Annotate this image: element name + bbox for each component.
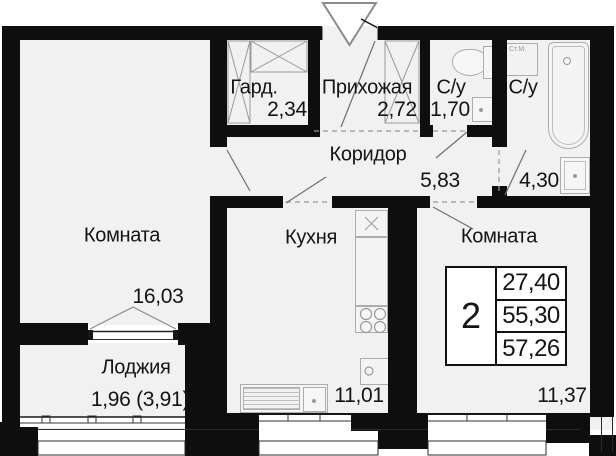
- bathtub-inner: [552, 46, 585, 145]
- washing-machine: Ст.М.: [505, 43, 538, 76]
- room2-area: 11,37: [537, 384, 587, 408]
- wall-hall-bath1: [420, 26, 430, 137]
- column-kitchen-room2: [388, 196, 417, 413]
- bath2-sink: [560, 157, 590, 194]
- hallway-label: Прихожая: [322, 77, 412, 100]
- pier-loggia-kitchen: [185, 413, 259, 456]
- wall-corridor-b: [332, 196, 430, 208]
- corridor-label: Коридор: [330, 144, 407, 167]
- bath2-area: 4,30: [519, 169, 559, 193]
- floor-plan: Ст.М.: [0, 0, 616, 456]
- gard-label: Гард.: [230, 77, 277, 100]
- wall-room1-loggia-b: [178, 323, 227, 345]
- dish-rack: [243, 387, 300, 410]
- kitchen-area: 11,01: [334, 384, 384, 408]
- hallway-area: 2,72: [377, 98, 417, 122]
- undercounter-appliance: [360, 358, 390, 385]
- bath2-sink-inner: [564, 161, 586, 190]
- wall-gard-hall: [308, 26, 320, 137]
- stove: [355, 306, 388, 333]
- room2-label: Комната: [461, 226, 537, 249]
- living-area-value: 27,40: [497, 268, 565, 301]
- gard-area: 2,34: [267, 98, 307, 122]
- kitchen-counter-right: [355, 237, 388, 306]
- wall-under-bath1-b: [467, 125, 492, 137]
- kitchen-sink: [303, 387, 326, 412]
- wall-under-bath1-a: [420, 125, 433, 137]
- loggia-label: Лоджия: [101, 357, 170, 380]
- loggia-area: 1,96 (3,91): [91, 388, 189, 412]
- fridge-unit: [355, 210, 388, 237]
- wall-under-gard: [210, 125, 313, 137]
- apartment-info-box: 2 27,40 55,30 57,26: [445, 266, 567, 366]
- bath2-label: С/у: [508, 77, 537, 100]
- corridor-area: 5,83: [420, 169, 460, 193]
- rooms-count: 2: [447, 268, 497, 364]
- wall-room1-loggia-a: [2, 323, 88, 345]
- area-without-loggia-value: 55,30: [497, 301, 565, 334]
- room1-label: Комната: [84, 225, 160, 248]
- area-values: 27,40 55,30 57,26: [497, 268, 565, 364]
- wall-bath-divider: [492, 26, 507, 147]
- room1-area: 16,03: [132, 285, 183, 309]
- kitchen-label: Кухня: [285, 227, 337, 250]
- wall-left: [2, 26, 20, 423]
- bath1-sink: [472, 97, 493, 122]
- column-base: [378, 413, 428, 449]
- bath1-label: С/у: [436, 77, 465, 100]
- wall-top-left: [2, 26, 322, 40]
- wall-corridor-a: [210, 196, 283, 208]
- bathtub: [548, 42, 589, 149]
- bath1-area: 1,70: [430, 98, 470, 122]
- balcony-ledges: [38, 441, 546, 455]
- total-area-value: 57,26: [497, 333, 565, 364]
- pier-bottom-left: [0, 422, 38, 456]
- corner-bottom-right: [589, 435, 616, 456]
- wall-right: [590, 26, 614, 417]
- pier-bottom-right: [546, 413, 590, 443]
- washing-machine-label: Ст.М.: [509, 46, 526, 53]
- wall-corridor-c: [477, 196, 590, 208]
